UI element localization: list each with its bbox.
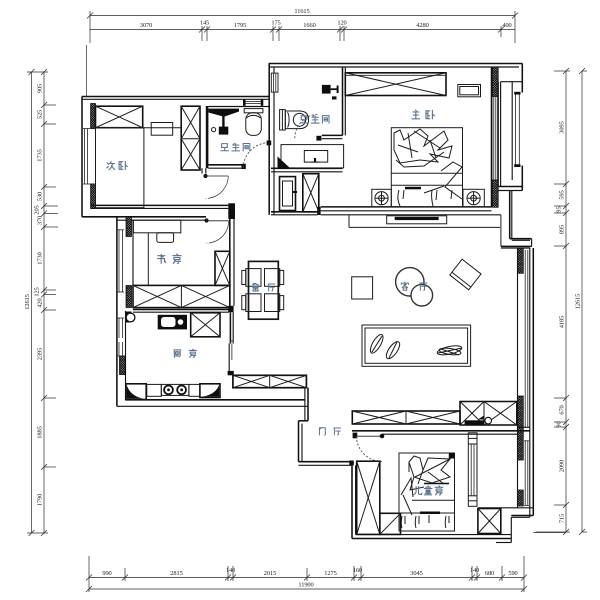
svg-text:90: 90 [556, 421, 563, 427]
svg-text:1885: 1885 [37, 426, 44, 438]
svg-text:3095: 3095 [559, 121, 566, 133]
svg-text:2015: 2015 [264, 570, 276, 577]
svg-text:1795: 1795 [234, 22, 246, 29]
svg-text:895: 895 [559, 225, 566, 234]
svg-text:160: 160 [353, 567, 362, 574]
svg-text:12615: 12615 [575, 294, 582, 309]
svg-text:595: 595 [559, 190, 566, 199]
svg-text:205: 205 [34, 205, 41, 214]
svg-text:3070: 3070 [140, 22, 152, 29]
svg-text:420: 420 [37, 298, 44, 307]
svg-text:12615: 12615 [24, 294, 31, 309]
svg-text:1275: 1275 [324, 570, 336, 577]
svg-text:1790: 1790 [37, 494, 44, 506]
svg-text:2395: 2395 [37, 348, 44, 360]
svg-text:905: 905 [37, 84, 44, 93]
svg-text:680: 680 [485, 570, 494, 577]
svg-text:140: 140 [226, 567, 235, 574]
svg-text:125: 125 [34, 287, 41, 296]
svg-text:715: 715 [559, 514, 566, 523]
svg-text:11900: 11900 [298, 582, 313, 589]
svg-text:1735: 1735 [37, 149, 44, 161]
svg-text:370: 370 [37, 216, 44, 225]
svg-text:2815: 2815 [170, 570, 182, 577]
svg-text:120: 120 [337, 20, 346, 27]
svg-text:145: 145 [200, 20, 209, 27]
svg-text:3045: 3045 [410, 570, 422, 577]
svg-text:95: 95 [556, 206, 563, 212]
svg-text:990: 990 [102, 570, 111, 577]
svg-text:400: 400 [502, 22, 511, 29]
svg-text:590: 590 [508, 570, 517, 577]
svg-text:530: 530 [37, 192, 44, 201]
svg-text:140: 140 [470, 567, 479, 574]
svg-text:670: 670 [559, 405, 566, 414]
svg-text:11615: 11615 [294, 8, 309, 15]
svg-text:4185: 4185 [559, 316, 566, 328]
svg-text:525: 525 [37, 110, 44, 119]
svg-text:1660: 1660 [303, 22, 315, 29]
svg-text:1730: 1730 [37, 252, 44, 264]
svg-text:175: 175 [271, 20, 280, 27]
svg-text:2090: 2090 [559, 460, 566, 472]
svg-text:4280: 4280 [416, 22, 428, 29]
